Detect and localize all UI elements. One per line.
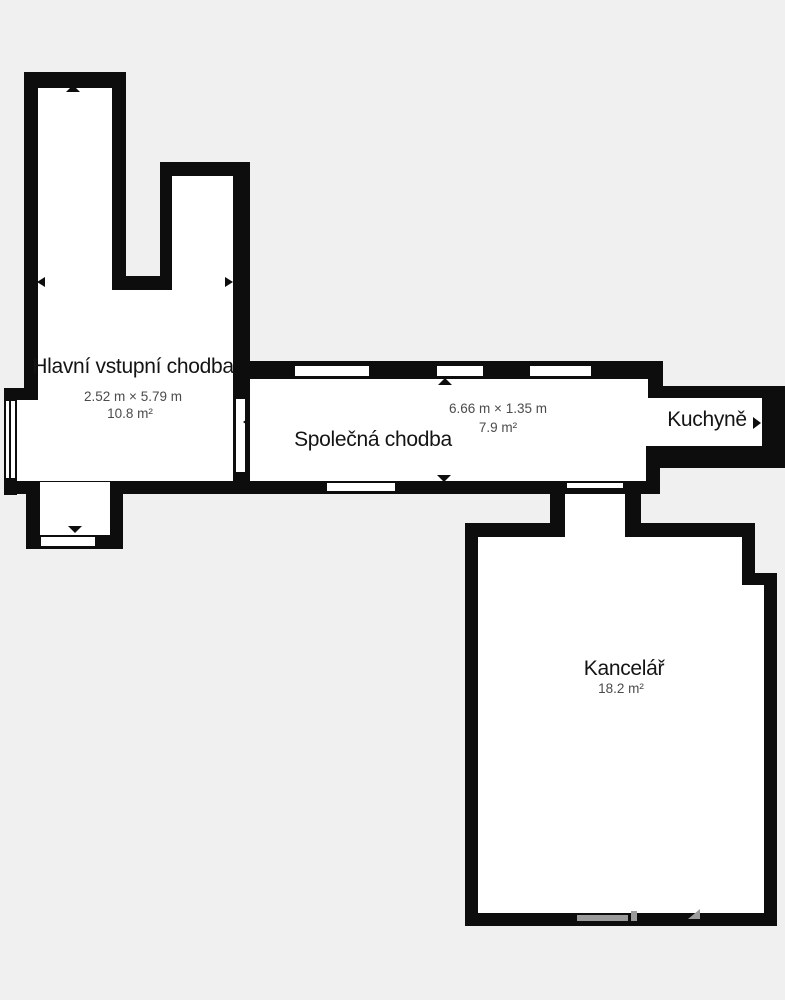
room-interior-kancelar — [478, 537, 742, 913]
room-area-kancelar: 18.2 m² — [521, 681, 721, 697]
room-name-kuchyne: Kuchyně — [627, 407, 785, 432]
wall-segment — [646, 446, 660, 494]
dimension-arrow-right-icon — [225, 277, 233, 287]
room-name-hlavni: Hlavní vstupní chodba — [13, 354, 253, 379]
wall-segment — [24, 72, 38, 400]
watermark-fragment — [688, 909, 700, 919]
door-opening-office — [565, 481, 625, 490]
wall-segment — [648, 446, 785, 468]
room-area-hlavni: 10.8 m² — [30, 406, 230, 422]
wall-segment — [160, 162, 172, 290]
room-name-kancelar: Kancelář — [524, 656, 724, 681]
floor-plan: Hlavní vstupní chodba 2.52 m × 5.79 m 10… — [0, 0, 785, 1000]
wall-segment — [764, 573, 777, 926]
room-interior-kancelar-neck — [565, 492, 625, 537]
dimension-arrow-down-icon — [437, 475, 451, 482]
door-opening-top-1 — [293, 364, 371, 378]
door-opening-bottom — [325, 481, 397, 493]
watermark-fragment — [577, 915, 628, 921]
door-opening-top-2 — [435, 364, 485, 378]
door-opening-hall — [234, 397, 247, 474]
wall-segment — [625, 492, 641, 537]
dimension-arrow-up-icon — [66, 85, 80, 92]
dimension-arrow-up-icon — [438, 378, 452, 385]
room-area-spolecna: 7.9 m² — [398, 420, 598, 436]
room-dimensions-hlavni: 2.52 m × 5.79 m — [33, 389, 233, 405]
dimension-arrow-left-icon — [243, 417, 250, 427]
door-opening-top-3 — [528, 364, 593, 378]
room-interior-kancelar-right — [742, 585, 764, 913]
passage-gap — [40, 482, 110, 494]
wall-segment — [625, 523, 755, 537]
dimension-arrow-left-icon — [37, 277, 45, 287]
room-dimensions-spolecna: 6.66 m × 1.35 m — [398, 401, 598, 417]
dimension-arrow-down-icon — [68, 526, 82, 533]
window-pane-line — [9, 401, 11, 478]
wall-segment — [465, 523, 478, 926]
watermark-fragment — [631, 911, 637, 921]
wall-segment — [550, 492, 565, 537]
room-interior-hlavni-mid — [38, 290, 233, 400]
window — [4, 399, 17, 480]
wall-segment — [112, 88, 126, 290]
door-opening-entrance — [39, 535, 97, 548]
